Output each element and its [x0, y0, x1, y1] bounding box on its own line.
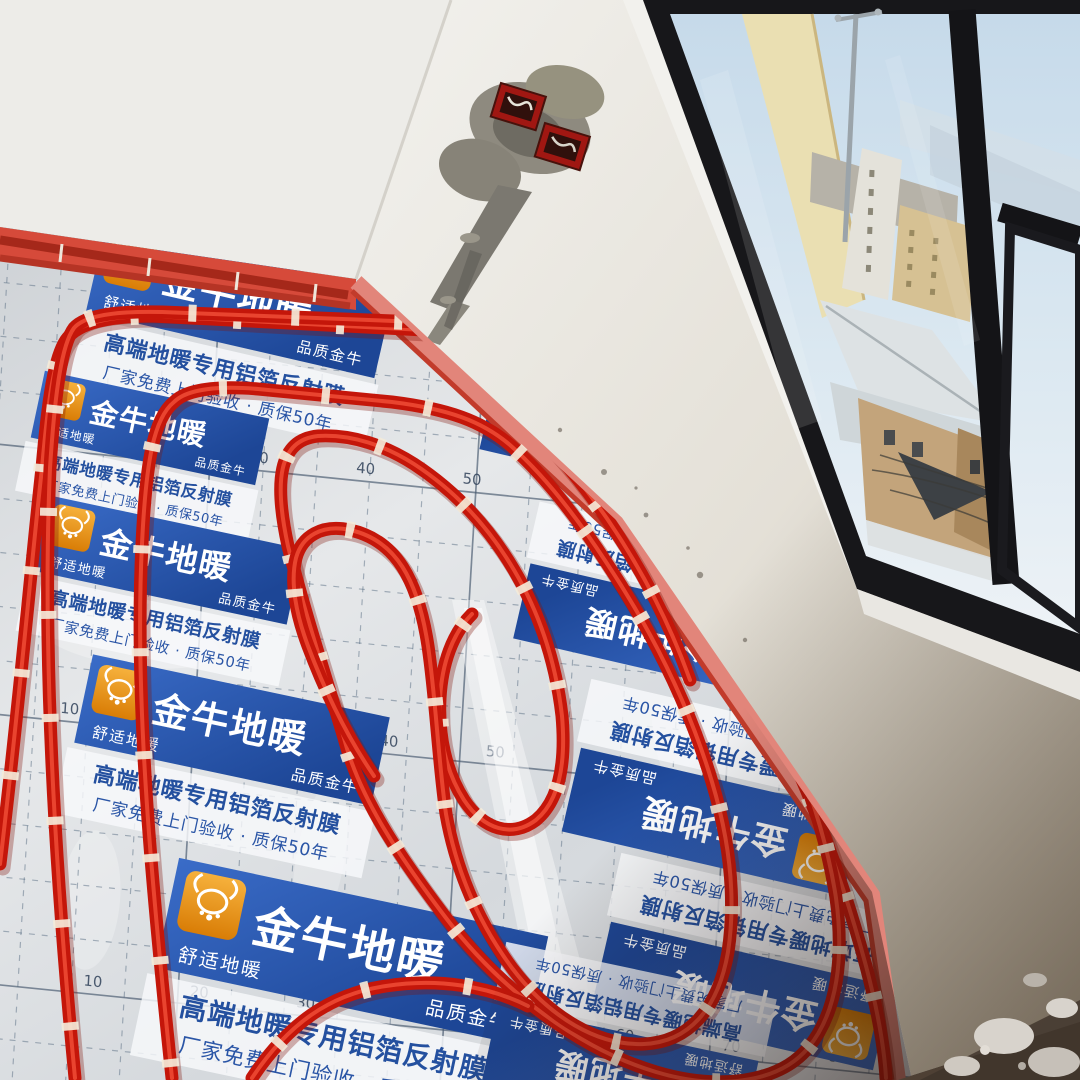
building-window: [912, 442, 923, 457]
grid-number: 10: [83, 971, 103, 991]
building-window: [970, 460, 980, 474]
grid-number: 10: [60, 699, 80, 719]
building-window: [884, 430, 895, 445]
grid-number: 40: [356, 458, 376, 478]
lamp-head: [875, 9, 882, 16]
lamp-head: [835, 15, 842, 22]
grid-number: 50: [462, 469, 482, 489]
photo-canvas: 金牛地暖 舒适地暖 品质金牛 高端地暖专用铝箔反射膜 厂家免费上门验收 · 质保…: [0, 0, 1080, 1080]
room-photo: 金牛地暖 舒适地暖 品质金牛 高端地暖专用铝箔反射膜 厂家免费上门验收 · 质保…: [0, 0, 1080, 1080]
